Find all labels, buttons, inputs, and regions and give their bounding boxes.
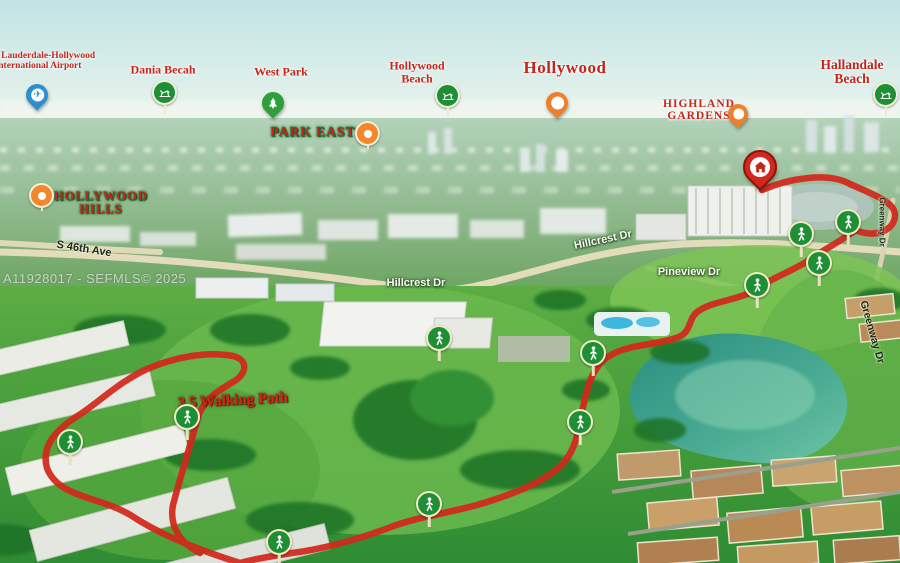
label-hollywood: Hollywood [524, 59, 607, 77]
tree-icon [268, 97, 278, 109]
aerial-map-photo: Fort Lauderdale-Hollywood International … [0, 0, 900, 563]
walking-path-marker-icon [806, 250, 832, 276]
walking-person-icon [182, 410, 193, 425]
label-hillcrest-dr-west: Hillcrest Dr [387, 277, 446, 289]
airplane-icon: ✈ [33, 90, 41, 100]
pin-dot [38, 192, 46, 200]
walking-person-icon [575, 415, 586, 430]
walking-person-icon [434, 331, 445, 346]
label-west-park: West Park [254, 66, 308, 79]
walking-path-marker-icon [744, 272, 770, 298]
walking-path-marker-icon [580, 340, 606, 366]
park-east-pin [355, 121, 380, 146]
pin-dot [364, 130, 372, 138]
pool-area [594, 312, 670, 336]
hollywood-beach-pin [435, 83, 460, 108]
label-pineview-dr: Pineview Dr [658, 266, 720, 278]
beach-chair-icon [159, 88, 171, 98]
label-hollywood-beach: Hollywood Beach [377, 59, 457, 84]
walking-person-icon [65, 435, 76, 450]
walking-person-icon [843, 215, 854, 230]
mls-watermark: A11928017 - SEFMLS© 2025 [3, 271, 186, 286]
hallandale-beach-pin [873, 82, 898, 107]
walking-person-icon [814, 256, 825, 271]
label-park-east: PARK EAST [271, 125, 356, 139]
walking-person-icon [752, 278, 763, 293]
walking-path-marker-icon [174, 404, 200, 430]
house-icon [754, 161, 767, 173]
label-airport: Fort Lauderdale-Hollywood International … [0, 52, 99, 72]
walking-path-marker-icon [835, 209, 861, 235]
label-hollywood-hills: HOLLYWOOD HILLS [39, 190, 163, 216]
walking-person-icon [588, 346, 599, 361]
walking-path-marker-icon [426, 325, 452, 351]
walking-path-marker-icon [567, 409, 593, 435]
label-greenway-dr-north: Greenway Dr [878, 197, 887, 246]
walking-person-icon [274, 535, 285, 550]
dania-beach-pin [152, 80, 177, 105]
walking-path-marker-icon [266, 529, 292, 555]
walking-person-icon [796, 227, 807, 242]
walking-person-icon [424, 497, 435, 512]
beach-chair-icon [442, 91, 454, 101]
walking-path-marker-icon [57, 429, 83, 455]
beach-chair-icon [880, 90, 892, 100]
walking-path-marker-icon [416, 491, 442, 517]
walking-path-marker-icon [788, 221, 814, 247]
hollywood-hills-pin [29, 183, 54, 208]
label-dania-beach: Dania Becah [130, 64, 195, 77]
